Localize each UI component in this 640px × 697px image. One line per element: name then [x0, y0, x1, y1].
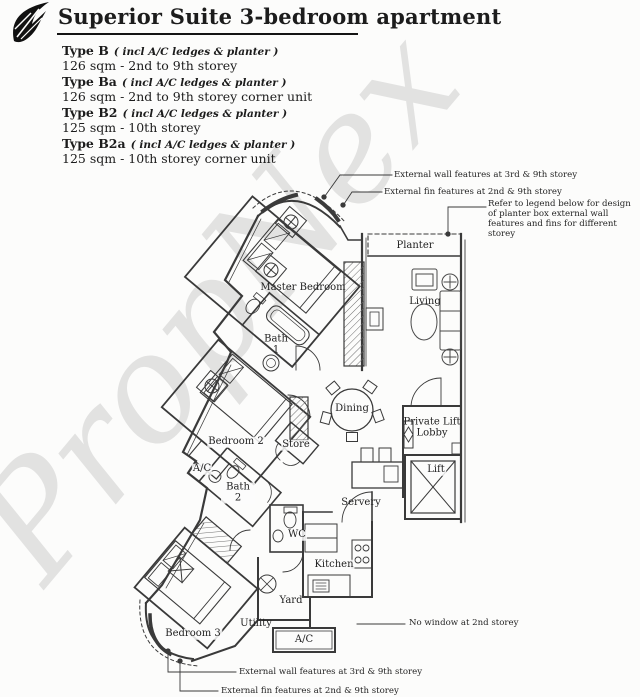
room-label-bath1: Bath 1 — [261, 335, 291, 356]
living-furniture — [411, 269, 461, 365]
unit-type-list: Type B ( incl A/C ledges & planter ) 126… — [62, 42, 312, 166]
room-label-utility: Utility — [240, 619, 272, 630]
bed — [243, 219, 341, 313]
wardrobe — [344, 262, 364, 366]
toilet — [243, 296, 262, 316]
room-label-servery: Servery — [341, 498, 381, 509]
annotation-fin-features-top: External fin features at 2nd & 9th store… — [384, 187, 562, 197]
room-label-kitchen: Kitchen — [313, 560, 354, 571]
type-name: Type B2 — [62, 105, 118, 120]
type-size: 126 sqm - 2nd to 9th storey — [62, 58, 312, 74]
type-size: 126 sqm - 2nd to 9th storey corner unit — [62, 89, 312, 105]
type-row: Type B2a ( incl A/C ledges & planter ) — [62, 135, 312, 151]
basin — [263, 355, 279, 371]
type-note: ( incl A/C ledges & planter ) — [122, 77, 286, 89]
room-label-store: Store — [281, 440, 311, 451]
room-label-ac-side: A/C — [192, 464, 212, 475]
coffee-table — [411, 304, 437, 340]
room-label-planter: Planter — [396, 241, 433, 252]
page-title: Superior Suite 3-bedroom apartment — [58, 4, 501, 29]
annotation-wall-features-bottom: External wall features at 3rd & 9th stor… — [239, 667, 422, 677]
sofa — [440, 291, 461, 350]
stove — [352, 540, 372, 568]
type-row: Type B ( incl A/C ledges & planter ) — [62, 42, 312, 58]
annotation-no-window: No window at 2nd storey — [409, 618, 518, 628]
floorplan-page: PropNex Superior Suite 3-bedroom apartme… — [0, 0, 640, 697]
basin — [273, 530, 283, 542]
room-label-private-lift-lobby: Private Lift Lobby — [401, 418, 463, 439]
type-note: ( incl A/C ledges & planter ) — [114, 46, 278, 58]
type-row: Type B2 ( incl A/C ledges & planter ) — [62, 104, 312, 120]
room-label-lift: Lift — [426, 465, 446, 476]
room-label-master-bedroom: Master Bedroom — [260, 283, 345, 294]
type-name: Type B — [62, 43, 109, 58]
type-note: ( incl A/C ledges & planter ) — [123, 108, 287, 120]
room-label-yard: Yard — [280, 596, 303, 607]
bed — [200, 354, 292, 442]
room-label-bedroom3: Bedroom 3 — [164, 629, 222, 640]
room-label-dining: Dining — [334, 404, 370, 415]
wardrobe — [192, 517, 241, 563]
type-name: Type Ba — [62, 74, 117, 89]
bedroom2-block — [149, 340, 310, 500]
door-arc — [411, 378, 441, 406]
room-label-ac-bottom: A/C — [294, 635, 314, 646]
tv-console — [366, 308, 383, 330]
room-label-bath2: Bath 2 — [221, 483, 255, 504]
type-size: 125 sqm - 10th storey — [62, 120, 312, 136]
leaf-logo-icon — [9, 1, 53, 43]
title-underline — [57, 33, 358, 35]
outer-wall — [146, 216, 258, 603]
room-label-living: Living — [409, 297, 441, 308]
annotation-legend-note: Refer to legend below for design of plan… — [488, 199, 640, 239]
type-note: ( incl A/C ledges & planter ) — [131, 139, 295, 151]
servery-counter — [352, 448, 403, 488]
annotation-fin-features-bottom: External fin features at 2nd & 9th store… — [221, 686, 399, 696]
toilet — [284, 512, 296, 528]
annotation-wall-features-top: External wall features at 3rd & 9th stor… — [394, 170, 577, 180]
type-name: Type B2a — [62, 136, 126, 151]
room-label-wc: WC — [287, 530, 307, 541]
type-row: Type Ba ( incl A/C ledges & planter ) — [62, 73, 312, 89]
type-size: 125 sqm - 10th storey corner unit — [62, 151, 312, 167]
room-label-bedroom2: Bedroom 2 — [207, 437, 265, 448]
